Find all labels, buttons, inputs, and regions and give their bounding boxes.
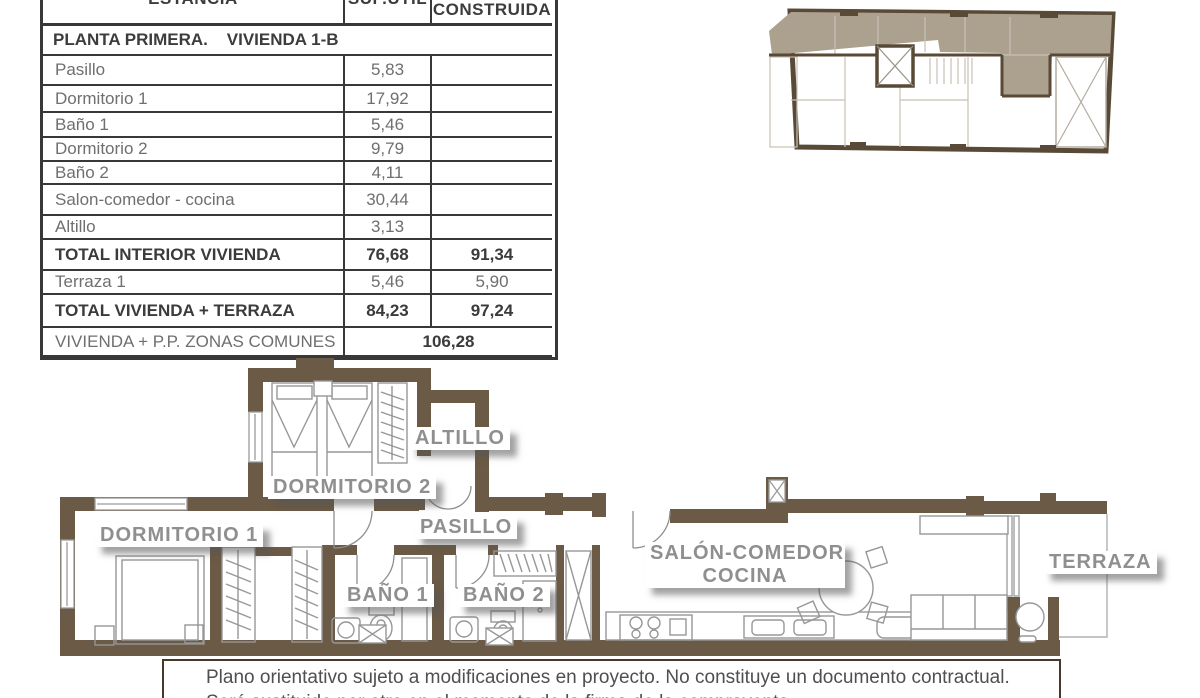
disclaimer-line-1: Plano orientativo sujeto a modificacione… (206, 665, 1059, 690)
salon-label-line2: COCINA (650, 565, 840, 588)
room-label-dormitorio-1: DORMITORIO 1 (95, 524, 263, 547)
floor-plan-drawing (0, 0, 1200, 698)
building-key-plan (769, 10, 1113, 151)
room-label-altillo: ALTILLO (410, 427, 510, 450)
room-label-terraza: TERRAZA (1044, 551, 1157, 574)
salon-label-line1: SALÓN-COMEDOR (650, 542, 840, 565)
elevator-shaft (877, 46, 913, 86)
floorplan-sheet: ESTANCIA SUP.ÚTIL CONSTRUIDA PLANTA PRIM… (0, 0, 1200, 698)
room-label-bano-2: BAÑO 2 (458, 584, 550, 607)
patio-shaft (1056, 57, 1106, 147)
room-label-salon-comedor-cocina: SALÓN-COMEDOR COCINA (645, 542, 845, 588)
disclaimer-line-2: Será sustituido por otro en el momento d… (206, 690, 1059, 698)
room-label-pasillo: PASILLO (415, 516, 517, 539)
room-label-dormitorio-2: DORMITORIO 2 (268, 476, 436, 499)
disclaimer-box: Plano orientativo sujeto a modificacione… (162, 659, 1061, 698)
room-label-bano-1: BAÑO 1 (342, 584, 434, 607)
